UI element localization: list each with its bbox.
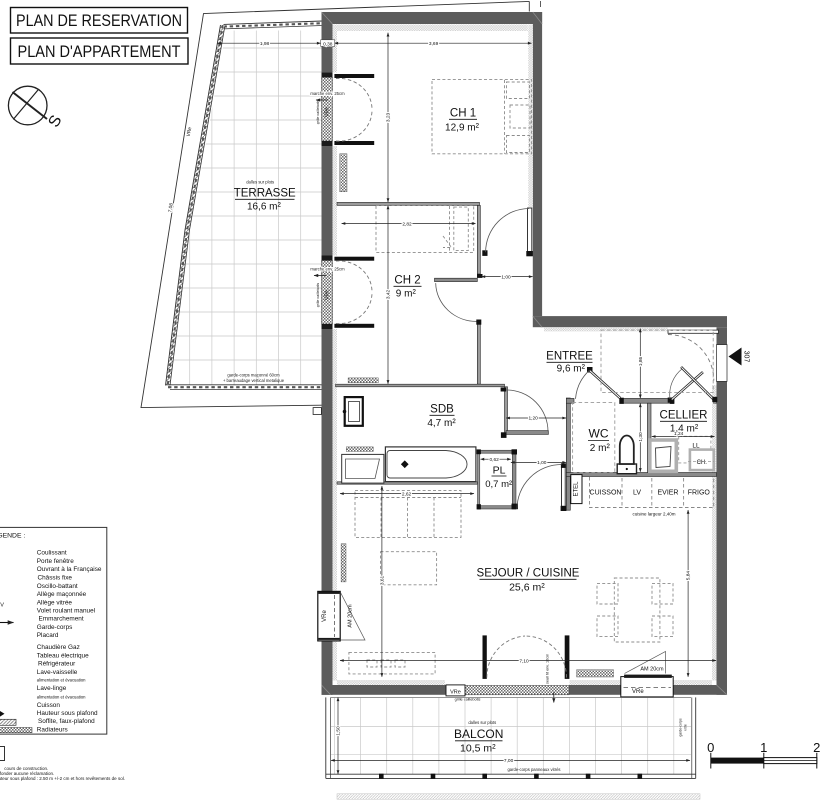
svg-text:Oscillo-battant: Oscillo-battant: [37, 583, 78, 590]
svg-text:alimentation et évacuation: alimentation et évacuation: [37, 695, 86, 700]
svg-text:5,84: 5,84: [686, 571, 692, 581]
svg-text:3,61: 3,61: [380, 576, 386, 586]
svg-text:Soffite, faux-plafond: Soffite, faux-plafond: [38, 718, 95, 725]
svg-text:Réfrigérateur: Réfrigérateur: [38, 661, 76, 668]
svg-text:0: 0: [707, 740, 714, 755]
svg-text:Ouvrant à la Française: Ouvrant à la Française: [37, 566, 102, 573]
svg-text:VRe: VRe: [632, 689, 644, 695]
svg-text:Radiateurs: Radiateurs: [37, 726, 68, 733]
svg-text:TERRASSE: TERRASSE: [234, 188, 296, 200]
svg-text:1,50: 1,50: [336, 726, 342, 736]
svg-text:25,6 m²: 25,6 m²: [509, 582, 545, 594]
svg-text:PLAN D'APPARTEMENT: PLAN D'APPARTEMENT: [18, 42, 181, 61]
svg-text:1,20: 1,20: [529, 416, 539, 422]
svg-text:0,7 m²: 0,7 m²: [485, 479, 512, 490]
svg-text:Hauteur sous plafond: Hauteur sous plafond: [37, 710, 98, 717]
svg-text:Tableau électrique: Tableau électrique: [37, 653, 89, 660]
svg-text:grille caillebotis: grille caillebotis: [316, 100, 320, 125]
svg-text:1,30: 1,30: [638, 432, 644, 442]
svg-text:Volet roulant manuel: Volet roulant manuel: [37, 608, 95, 615]
svg-text:0,38: 0,38: [323, 41, 333, 47]
svg-text:LEGENDE :: LEGENDE :: [0, 533, 25, 540]
svg-text:1,86: 1,86: [638, 357, 644, 367]
svg-text:grille caillebotis: grille caillebotis: [316, 283, 320, 308]
svg-text:Emmarchement: Emmarchement: [39, 616, 84, 623]
svg-text:garde-corps panneaux vitrés: garde-corps panneaux vitrés: [507, 767, 560, 772]
svg-text:16,6 m²: 16,6 m²: [247, 202, 282, 213]
svg-text:Châssis fixe: Châssis fixe: [38, 574, 73, 581]
svg-text:ENTREE: ENTREE: [546, 351, 593, 363]
svg-text:Placard: Placard: [37, 632, 59, 639]
svg-text:CH.: CH.: [697, 460, 708, 466]
svg-text:AM 20cm: AM 20cm: [348, 604, 354, 628]
svg-text:auteur sous plafond : 2.50 m +: auteur sous plafond : 2.50 m +/-2 cm et …: [0, 776, 125, 781]
svg-text:Garde-corps: Garde-corps: [37, 624, 73, 631]
svg-text:FRIGO: FRIGO: [688, 490, 711, 497]
svg-text:CH 2: CH 2: [394, 275, 420, 287]
svg-text:Chaudière Gaz: Chaudière Gaz: [37, 644, 80, 651]
svg-text:AM 20cm: AM 20cm: [640, 667, 664, 673]
svg-text:cuisine largeur 2,40m: cuisine largeur 2,40m: [632, 512, 675, 517]
svg-text:307: 307: [743, 351, 750, 363]
svg-text:ETEL: ETEL: [573, 481, 579, 497]
svg-text:Porte fenêtre: Porte fenêtre: [37, 558, 74, 565]
svg-text:dalles sur plots: dalles sur plots: [468, 720, 496, 725]
svg-text:Lave-vaisselle: Lave-vaisselle: [37, 669, 78, 676]
svg-text:PLAN DE RESERVATION: PLAN DE RESERVATION: [16, 11, 182, 30]
svg-text:LV: LV: [633, 490, 641, 497]
svg-text:3,23: 3,23: [386, 113, 392, 123]
svg-text:EVIER: EVIER: [657, 490, 678, 497]
svg-text:+ barreaudage vertical metaliq: + barreaudage vertical metalique: [223, 378, 285, 383]
svg-text:CELLIER: CELLIER: [660, 410, 708, 422]
svg-text:0,62: 0,62: [490, 457, 500, 463]
svg-text:9 m²: 9 m²: [396, 289, 417, 300]
svg-text:VRe: VRe: [322, 610, 328, 622]
svg-text:seuil ht env. 10cm: seuil ht env. 10cm: [546, 654, 550, 684]
svg-text:marche env. 25cm: marche env. 25cm: [310, 91, 345, 96]
svg-text:12,9 m²: 12,9 m²: [445, 123, 480, 134]
svg-text:alimentation et évacuation: alimentation et évacuation: [37, 678, 86, 683]
svg-text:4,7 m²: 4,7 m²: [427, 418, 456, 429]
svg-text:VRe: VRe: [450, 689, 461, 695]
svg-text:1,98: 1,98: [260, 41, 270, 47]
svg-text:Allège vitrée: Allège vitrée: [37, 599, 73, 606]
svg-text:1,00: 1,00: [501, 274, 511, 280]
svg-text:VRe: VRe: [325, 290, 331, 300]
svg-text:CH 1: CH 1: [450, 108, 476, 120]
svg-text:10,5 m²: 10,5 m²: [460, 743, 496, 755]
svg-text:VRe: VRe: [325, 107, 331, 117]
svg-text:1,24: 1,24: [674, 431, 684, 437]
svg-text:2,82: 2,82: [402, 221, 412, 227]
svg-text:1: 1: [760, 740, 767, 755]
svg-text:dalles sur plots: dalles sur plots: [246, 180, 274, 185]
svg-text:Coulissant: Coulissant: [37, 550, 67, 557]
svg-text:CUISSON: CUISSON: [590, 490, 622, 497]
svg-text:2: 2: [813, 740, 820, 755]
svg-text:2 m²: 2 m²: [590, 443, 611, 454]
svg-text:2,62: 2,62: [402, 491, 412, 497]
svg-text:Allège maçonnée: Allège maçonnée: [37, 591, 87, 598]
svg-text:Cuisson: Cuisson: [37, 702, 61, 709]
svg-text:3,42: 3,42: [386, 290, 392, 300]
svg-text:WC: WC: [589, 427, 609, 441]
svg-text:PL: PL: [493, 465, 506, 477]
svg-text:SEJOUR / CUISINE: SEJOUR / CUISINE: [477, 568, 580, 580]
svg-text:vitré: vitré: [684, 724, 688, 731]
svg-text:7,00: 7,00: [504, 758, 514, 764]
svg-text:1,00: 1,00: [537, 460, 547, 466]
svg-text:7,10: 7,10: [519, 658, 529, 664]
svg-text:BALCON: BALCON: [454, 727, 503, 741]
svg-text:A.V: A.V: [0, 602, 4, 608]
svg-text:marche env. 25cm: marche env. 25cm: [310, 267, 345, 272]
svg-text:9,6 m²: 9,6 m²: [557, 364, 586, 375]
svg-text:Lave-linge: Lave-linge: [37, 685, 67, 692]
svg-text:garde-corps maçonné 60cm: garde-corps maçonné 60cm: [227, 373, 280, 378]
svg-text:garde-corps: garde-corps: [679, 718, 683, 736]
svg-text:3,69: 3,69: [429, 41, 439, 47]
svg-text:SDB: SDB: [430, 404, 454, 416]
